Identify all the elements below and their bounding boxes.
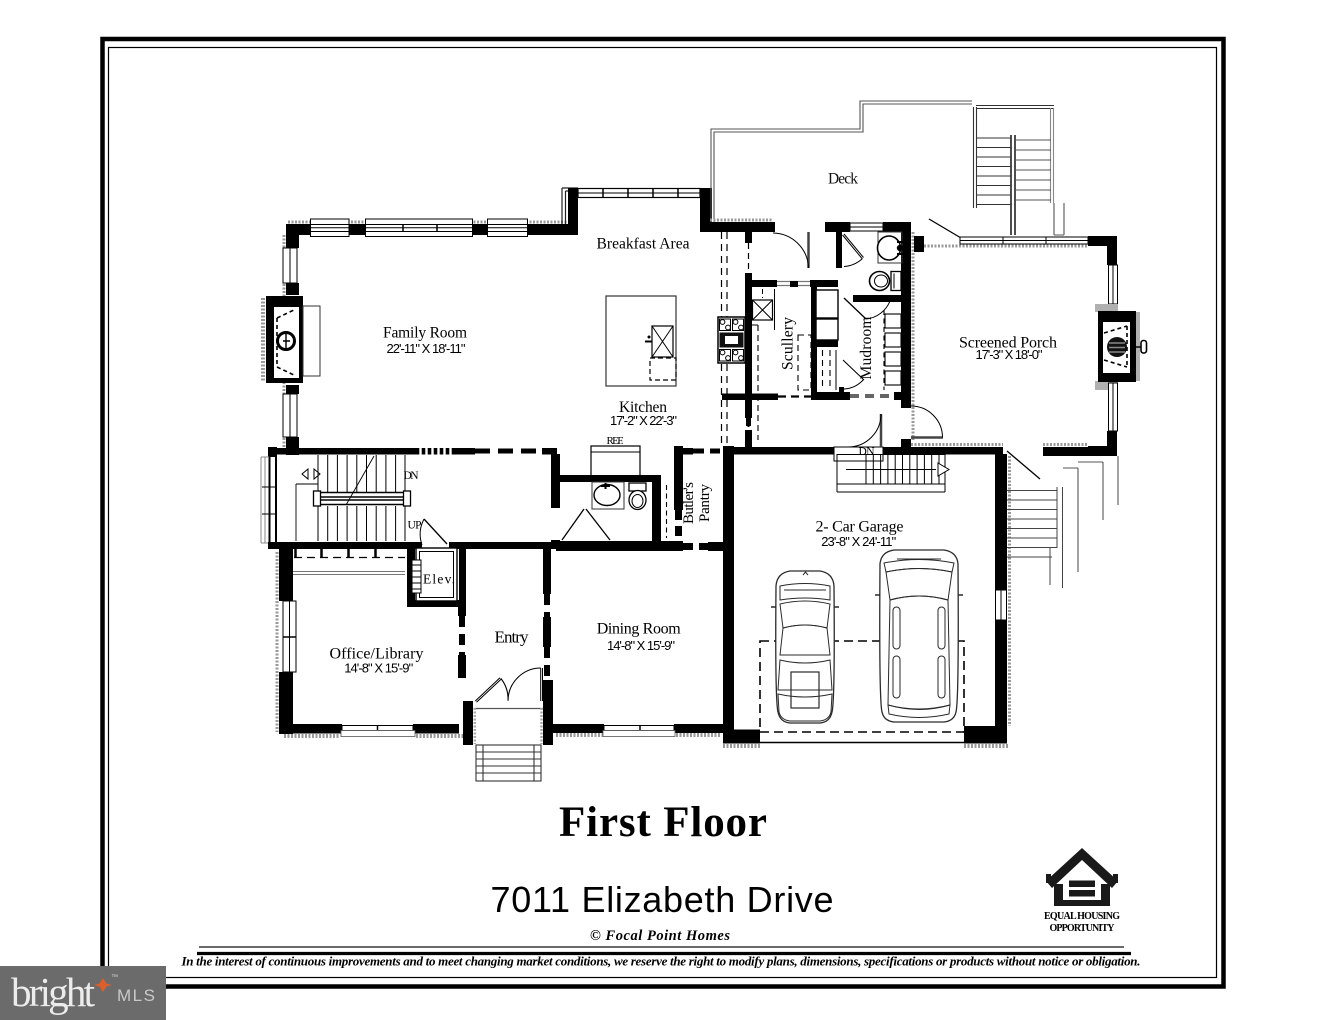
svg-text:Elev.: Elev. (423, 571, 455, 586)
svg-text:Scullery: Scullery (780, 317, 797, 370)
svg-text:DN: DN (404, 470, 420, 482)
svg-text:© Focal Point Homes: © Focal Point Homes (590, 928, 730, 944)
svg-text:bright: bright (11, 969, 96, 1015)
svg-text:REF.: REF. (607, 435, 624, 447)
svg-text:Family Room: Family Room (383, 325, 467, 342)
svg-text:Mudroom: Mudroom (858, 317, 875, 380)
svg-text:In the interest of continuous: In the interest of continuous improvemen… (181, 954, 1141, 969)
svg-text:™: ™ (111, 974, 118, 981)
svg-text:Breakfast Area: Breakfast Area (597, 236, 690, 253)
svg-text:OPPORTUNITY: OPPORTUNITY (1050, 923, 1116, 934)
svg-text:MLS: MLS (117, 986, 155, 1005)
svg-text:17'-3" X 18'-0": 17'-3" X 18'-0" (976, 347, 1043, 362)
svg-text:14'-8" X 15'-9": 14'-8" X 15'-9" (344, 661, 413, 676)
svg-text:17'-2" X 22'-3": 17'-2" X 22'-3" (610, 413, 677, 428)
svg-text:14'-8" X 15'-9": 14'-8" X 15'-9" (607, 638, 675, 653)
svg-text:22'-11" X 18'-11": 22'-11" X 18'-11" (387, 341, 466, 356)
svg-text:DN: DN (859, 446, 876, 458)
svg-text:Pantry: Pantry (697, 484, 713, 523)
svg-text:Entry: Entry (495, 628, 530, 647)
svg-text:Dining Room: Dining Room (597, 621, 682, 638)
svg-text:UP: UP (408, 520, 422, 532)
svg-text:7011 Elizabeth Drive: 7011 Elizabeth Drive (491, 879, 834, 920)
svg-text:23'-8" X 24'-11": 23'-8" X 24'-11" (821, 534, 896, 549)
svg-text:EQUAL HOUSING: EQUAL HOUSING (1044, 911, 1120, 922)
svg-text:Deck: Deck (828, 171, 858, 188)
svg-text:Butler's: Butler's (681, 482, 697, 524)
svg-text:First Floor: First Floor (559, 799, 767, 846)
